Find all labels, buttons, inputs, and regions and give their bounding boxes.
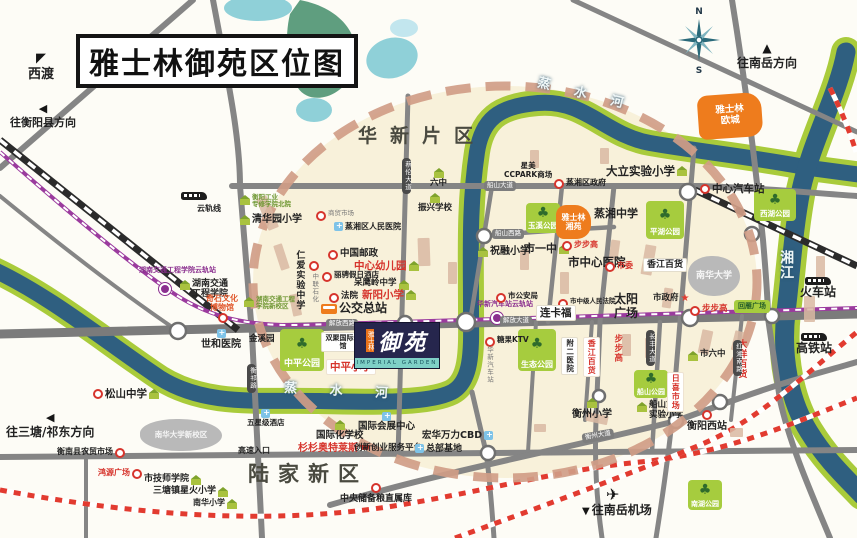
park-yuxi: 玉溪公园: [526, 203, 560, 233]
plate-chuanshan-west-rd-label: 船山西路: [495, 229, 521, 239]
poi-highway-entrance: 高速入口: [238, 446, 270, 455]
poi-intl-expo-center: 国际会展中心: [358, 412, 415, 433]
dot-icon: [322, 272, 332, 282]
poi-liuzhong: 六中: [430, 167, 447, 189]
poi-zhengxiang-people-hospital: 蒸湘区人民医院: [334, 222, 401, 231]
poi-shiliuzhong: 市六中: [688, 350, 726, 361]
monorail-line-label: 云轨线: [197, 204, 221, 213]
park-yuxi-label: 玉溪公园: [528, 222, 558, 231]
poi-shangmao-market-label: 商贸市场: [328, 210, 354, 217]
dot-icon: [218, 313, 228, 323]
poi-bubugao-dot-label: 步步高: [702, 305, 728, 315]
block-yashilin-xiangyuan-label: 雅士林 湘苑: [562, 213, 586, 231]
plate-chuanshan-west-rd: 船山西路: [492, 229, 524, 239]
park-pinghu: 平湖公园: [646, 201, 684, 239]
school-icon: [240, 199, 250, 205]
school-icon: [587, 402, 597, 408]
blob-nanhua-new-campus-label: 南华大学新校区: [155, 431, 208, 440]
dir-santang-label: 往三塘/祁东方向: [6, 426, 94, 440]
poi-hongyuan-square-label: 鸿源广场: [98, 468, 130, 477]
monorail-train: [181, 192, 207, 200]
hosp-icon: [334, 222, 343, 231]
train-icon: [805, 277, 831, 285]
plate-cailun-ave: 蔡伦大道: [402, 158, 411, 194]
dot-icon: [309, 261, 319, 271]
poi-zhengxiang-middle-label: 蒸湘中学: [594, 208, 638, 221]
school-icon: [677, 170, 687, 176]
poi-lianka-label: 连卡福: [540, 307, 572, 319]
poi-bus-terminal-label: 公交总站: [339, 302, 387, 316]
dir-xidu-label: 西渡: [28, 68, 54, 83]
dot-icon: [702, 410, 712, 420]
district-huaxin-label: 华新片区: [358, 126, 486, 148]
poi-shihe-hospital: 世和医院: [201, 329, 241, 351]
building-block: [534, 424, 546, 432]
map-title: 雅士林御苑区位图: [76, 34, 358, 88]
poi-xiangjiang-dept-label: 香江百货: [647, 260, 683, 270]
poi-lianka: 连卡福: [536, 305, 576, 321]
poi-honghua-cbd: 宏华万力CBD: [422, 431, 493, 442]
poi-honghua-cbd-label: 宏华万力CBD: [422, 431, 482, 442]
poi-qinghuayuan-primary: 清华园小学: [240, 214, 302, 226]
hosp-icon: [217, 329, 226, 338]
poi-highway-entrance-label: 高速入口: [238, 446, 270, 455]
poi-intl-expo-center-label: 国际会展中心: [358, 422, 415, 433]
poi-central-bus-station: 中心汽车站: [700, 183, 765, 195]
poi-hengnan-market-label: 衡南县农贸市场: [57, 447, 113, 456]
compass-north-label: N: [676, 8, 722, 17]
dot-icon: [554, 179, 564, 189]
dot-icon: [316, 211, 326, 221]
dir-airport-label: 往南岳机场: [592, 504, 652, 518]
poi-railway-station-label: 火车站: [800, 286, 836, 300]
monorail-line: 云轨线: [197, 204, 221, 213]
poi-liuzhong-label: 六中: [430, 179, 447, 189]
plate-chuanshan-ave: 船山大道: [484, 181, 516, 191]
poi-hengzhou-primary: 衡州小学: [572, 397, 612, 421]
arrow-nw-icon: [36, 52, 46, 67]
dir-nanyue: 往南岳方向: [737, 42, 797, 71]
poi-zhengxiang-middle: 蒸湘中学: [594, 208, 638, 221]
dot-icon: [690, 306, 700, 316]
compass: N S: [676, 8, 722, 76]
river-xiangjiang-label: 湘江: [778, 250, 794, 280]
poi-hsr-station-label: 高铁站: [796, 342, 832, 356]
poi-xiangjiang-dept-v: 香江百货: [583, 337, 600, 377]
building-block: [816, 256, 825, 278]
dir-hengyang-county: 往衡阳县方向: [10, 103, 76, 129]
poi-huaxin-bus-station-label: 华新汽车站: [485, 346, 492, 384]
dot-icon: [132, 469, 142, 479]
hosp-icon: [484, 431, 493, 440]
poi-fuer-hospital: 附二医院: [561, 337, 578, 375]
star-icon: [681, 294, 690, 305]
park-nanhu-label: 南湖公园: [691, 500, 719, 508]
poi-hengzhou-primary-label: 衡州小学: [572, 409, 612, 421]
poi-hsr-station: 高铁站: [796, 333, 832, 356]
bus-icon: [321, 304, 337, 314]
poi-shiyizhong-label: 市一中: [524, 243, 557, 256]
park-chuanshan-label: 船山公园: [637, 388, 665, 396]
park-huiyan-square: 回雁广场: [734, 300, 770, 313]
plate-hengqi-rd: 衡祁路: [247, 364, 256, 393]
poi-five-star-hotel: 五星级酒店: [247, 409, 285, 428]
dir-nanyue-label: 往南岳方向: [737, 57, 797, 71]
poi-hengyang-tech-college-label: 衡阳工业 专修学院北院: [252, 194, 291, 209]
arrow-l-icon: [46, 411, 54, 425]
poi-tangguo-ktv-label: 糖果KTV: [497, 336, 529, 345]
compass-rose-icon: [676, 17, 722, 63]
dir-xidu: 西渡: [28, 52, 54, 83]
building-block: [622, 334, 631, 356]
plate-hongxiang-south-rd-label: 红湘南路: [734, 343, 741, 373]
poi-tech-teachers-college-label: 市技师学院: [144, 474, 189, 484]
poi-innovation-platform-label: 创新创业服务平台: [354, 444, 422, 454]
poi-hengyang-west-station: 衡阳西站: [687, 409, 727, 433]
poi-bus-terminal: 公交总站: [321, 302, 387, 316]
plate-changfeng-ave: 长丰大道: [646, 330, 655, 366]
plate-jiefang-west-rd-label: 解放西路: [329, 319, 355, 329]
poi-hq-base: 总部基地: [415, 444, 462, 454]
building-block: [730, 428, 743, 437]
school-icon: [434, 172, 444, 178]
school-icon: [478, 251, 488, 257]
poi-qishi-dot: [218, 312, 228, 323]
block-yashilin-xiangyuan: 雅士林 湘苑: [556, 205, 591, 239]
plate-hongxiang-south-rd: 红湘南路: [733, 340, 742, 376]
project-english-name: IMPERIAL GARDEN: [355, 358, 439, 368]
poi-zhengxiang-gov-label: 蒸湘区政府: [566, 178, 606, 187]
poi-innovation-platform: 创新创业服务平台: [354, 444, 422, 454]
poi-bubugao-2: 步步高: [562, 240, 598, 251]
poi-china-post-label: 中国邮政: [340, 249, 378, 260]
poi-shanshan-outlets-label: 杉杉奥特莱斯: [298, 443, 358, 455]
plane-icon: [606, 487, 619, 503]
poi-grain-depot-label: 中央储备粮直属库: [340, 494, 412, 504]
poi-zhengxiang-people-hospital-label: 蒸湘区人民医院: [345, 222, 401, 231]
poi-zhenxing-school-label: 振兴学校: [418, 204, 452, 214]
poi-huaxin-bus-station: 华新汽车站: [485, 346, 492, 384]
poi-jinxiyuan: 金溪园: [249, 335, 275, 345]
school-icon: [180, 284, 190, 290]
hosp-icon: [382, 412, 391, 421]
arrow-l-icon: [39, 103, 47, 116]
poi-hengyang-tech-college: 衡阳工业 专修学院北院: [240, 194, 291, 209]
block-yashilin-oucheng-label: 雅士林 欧城: [715, 104, 745, 128]
school-icon: [406, 294, 416, 300]
school-icon: [227, 503, 237, 509]
building-block: [560, 272, 569, 294]
poi-bubugao-dot: 步步高: [690, 305, 728, 316]
poi-dali-primary-label: 大立实验小学: [606, 165, 675, 178]
poi-hengyang-west-station-label: 衡阳西站: [687, 421, 727, 433]
poi-xinyang-primary: 新阳小学: [362, 289, 416, 301]
blob-nanhua-new-campus: 南华大学新校区: [140, 419, 222, 451]
poi-intl-school-label: 国际化学校: [316, 431, 364, 442]
poi-daiyingling-middle-label: 呆鹰岭中学: [354, 279, 397, 289]
plate-jiefang-ave: 解放大道: [500, 316, 532, 326]
poi-jiaotong-new-campus: 湖南交通工程 学院新校区: [244, 296, 295, 311]
poi-hq-base-label: 总部基地: [426, 444, 462, 454]
poi-taiyang-square: 太阳 广场: [614, 293, 638, 321]
dot-icon: [496, 293, 506, 303]
dot-icon: [371, 483, 381, 493]
school-icon: [335, 424, 345, 430]
school-icon: [637, 406, 647, 412]
park-zhongping: 中平公园: [280, 329, 324, 371]
poi-qishi-museum: 奇石文化 博物馆: [206, 294, 238, 312]
poi-shiliuzhong-label: 市六中: [700, 350, 726, 360]
poi-jinxiyuan-label: 金溪园: [249, 335, 275, 345]
school-icon: [688, 355, 698, 361]
poi-intl-school: 国际化学校: [316, 419, 364, 442]
poi-railway-station: 火车站: [800, 277, 836, 300]
arrow-dn-icon: [582, 504, 590, 518]
poi-xiangjiang-dept-v-label: 香江百货: [587, 339, 596, 375]
poi-taiyang-square-label: 太阳 广场: [614, 293, 638, 321]
poi-zhengxiang-gov: 蒸湘区政府: [554, 178, 606, 189]
district-huaxin: 华新片区: [358, 126, 486, 148]
school-icon: [218, 491, 228, 497]
poi-shiwei: 市委: [605, 261, 633, 272]
dir-airport: 往南岳机场: [582, 504, 652, 518]
arrow-up-icon: [762, 42, 771, 56]
poi-jiaotong-new-campus-label: 湖南交通工程 学院新校区: [256, 296, 295, 311]
poi-intermediate-court-label: 市中级人民法院: [570, 298, 616, 305]
train-icon: [181, 192, 207, 200]
station-jiaotong: 湖南交通工程学院云轨站: [139, 266, 216, 274]
school-icon: [409, 265, 419, 271]
poi-nanhua-primary-label: 南华小学: [193, 498, 225, 507]
poi-bubugao-2-label: 步步高: [574, 240, 598, 249]
poi-songshan-middle-label: 松山中学: [105, 388, 147, 400]
project-logo: 雅士林 御苑 IMPERIAL GARDEN: [354, 322, 440, 369]
poi-china-post: 中国邮政: [328, 249, 378, 260]
poi-bubugao-v: 步步高: [612, 334, 622, 363]
dot-icon: [562, 241, 572, 251]
park-nanhu: 南湖公园: [688, 480, 722, 510]
poi-qishi-museum-label: 奇石文化 博物馆: [206, 294, 238, 312]
blob-nanhua-univ-label: 南华大学: [696, 271, 732, 281]
park-shengtai-label: 生态公园: [521, 360, 553, 369]
project-brand-seal: 雅士林: [366, 329, 375, 353]
station-icon: [159, 283, 171, 295]
poi-hongyuan-square: 鸿源广场: [98, 468, 142, 479]
building-block: [448, 262, 457, 284]
dot-icon: [115, 448, 125, 458]
poi-xiangjiang-dept: 香江百货: [643, 258, 687, 272]
poi-fuer-hospital-label: 附二医院: [565, 339, 574, 373]
poi-shangmao-market: 商贸市场: [316, 210, 354, 221]
building-block: [600, 148, 609, 164]
poi-hengnan-market: 衡南县农贸市场: [57, 447, 125, 458]
dot-icon: [605, 262, 615, 272]
poi-central-bus-station-label: 中心汽车站: [712, 183, 765, 195]
park-xihu-label: 西湖公园: [760, 210, 790, 219]
poi-city-gov-label: 市政府: [653, 294, 679, 304]
poi-santang-xinghuo-primary: 三塘镇星火小学: [153, 486, 228, 497]
school-icon: [149, 393, 159, 399]
building-block: [804, 296, 815, 322]
poi-renai-middle: 仁爱实验中学: [294, 250, 304, 310]
dot-icon: [700, 184, 710, 194]
station-jiaotong-label: 湖南交通工程学院云轨站: [139, 266, 216, 274]
poi-dali-primary: 大立实验小学: [606, 165, 687, 178]
poi-songshan-middle: 松山中学: [93, 388, 159, 400]
plate-jiefang-ave-label: 解放大道: [503, 316, 529, 326]
park-huiyan-square-label: 回雁广场: [738, 302, 766, 310]
school-icon: [244, 301, 254, 307]
poi-tech-teachers-college: 市技师学院: [144, 474, 201, 485]
train-icon: [801, 333, 827, 341]
poi-ccpark: 星美 CCPARK商场: [504, 162, 552, 179]
poi-city-gov: 市政府: [653, 294, 689, 305]
hosp-icon: [415, 444, 424, 453]
dir-hengyang-county-label: 往衡阳县方向: [10, 117, 76, 130]
park-chuanshan: 船山公园: [634, 370, 668, 398]
poi-rixi-market-label: 日喜市场: [671, 374, 680, 410]
school-icon: [430, 197, 440, 203]
poi-zhenxing-school: 振兴学校: [418, 192, 452, 214]
blob-nanhua-univ: 南华大学: [688, 256, 740, 296]
map: 西渡往衡阳县方向往南岳方向往三塘/祁东方向往南岳机场蒸 水 河蒸 水 河湘江华新…: [0, 0, 857, 538]
poi-zhurong-primary: 祝融小学: [478, 246, 530, 258]
poi-public-security-label: 市公安局: [508, 292, 538, 301]
poi-zhonglian-petrol-label: 中联石化: [310, 273, 317, 303]
plate-hengqi-rd-label: 衡祁路: [248, 367, 255, 390]
plate-changfeng-ave-label: 长丰大道: [647, 333, 654, 363]
poi-shihe-hospital-label: 世和医院: [201, 339, 241, 351]
hosp-icon: [261, 409, 270, 418]
poi-five-star-hotel-label: 五星级酒店: [247, 419, 285, 428]
compass-south-label: S: [676, 67, 722, 76]
school-icon: [240, 219, 250, 225]
dot-icon: [93, 389, 103, 399]
poi-zhonglian-petrol: 中联石化: [309, 260, 319, 303]
poi-grain-depot: 中央储备粮直属库: [340, 482, 412, 504]
dot-icon: [328, 250, 338, 260]
airport-plane: [606, 487, 619, 503]
station-jiaotong-dot: [159, 283, 171, 295]
plate-cailun-ave-label: 蔡伦大道: [403, 161, 410, 191]
school-icon: [191, 479, 201, 485]
dir-santang: 往三塘/祁东方向: [6, 411, 94, 440]
poi-ccpark-label: 星美 CCPARK商场: [504, 162, 552, 179]
poi-rixi-market: 日喜市场: [667, 372, 684, 412]
poi-bubugao-v-label: 步步高: [612, 334, 622, 363]
poi-renai-middle-label: 仁爱实验中学: [294, 250, 304, 310]
plate-chuanshan-ave-label: 船山大道: [487, 181, 513, 191]
poi-public-security: 市公安局: [496, 292, 538, 303]
poi-xinyang-primary-label: 新阳小学: [362, 289, 404, 301]
project-name: 御苑: [378, 325, 428, 357]
building-block: [418, 238, 431, 266]
park-pinghu-label: 平湖公园: [650, 228, 680, 237]
block-yashilin-oucheng: 雅士林 欧城: [697, 92, 764, 140]
poi-santang-xinghuo-primary-label: 三塘镇星火小学: [153, 486, 216, 496]
poi-shiwei-label: 市委: [617, 261, 633, 270]
park-zhongping-label: 中平公园: [284, 359, 320, 369]
poi-nanhua-primary: 南华小学: [193, 498, 237, 509]
river-xiangjiang: 湘江: [778, 250, 794, 280]
poi-qinghuayuan-primary-label: 清华园小学: [252, 214, 302, 226]
